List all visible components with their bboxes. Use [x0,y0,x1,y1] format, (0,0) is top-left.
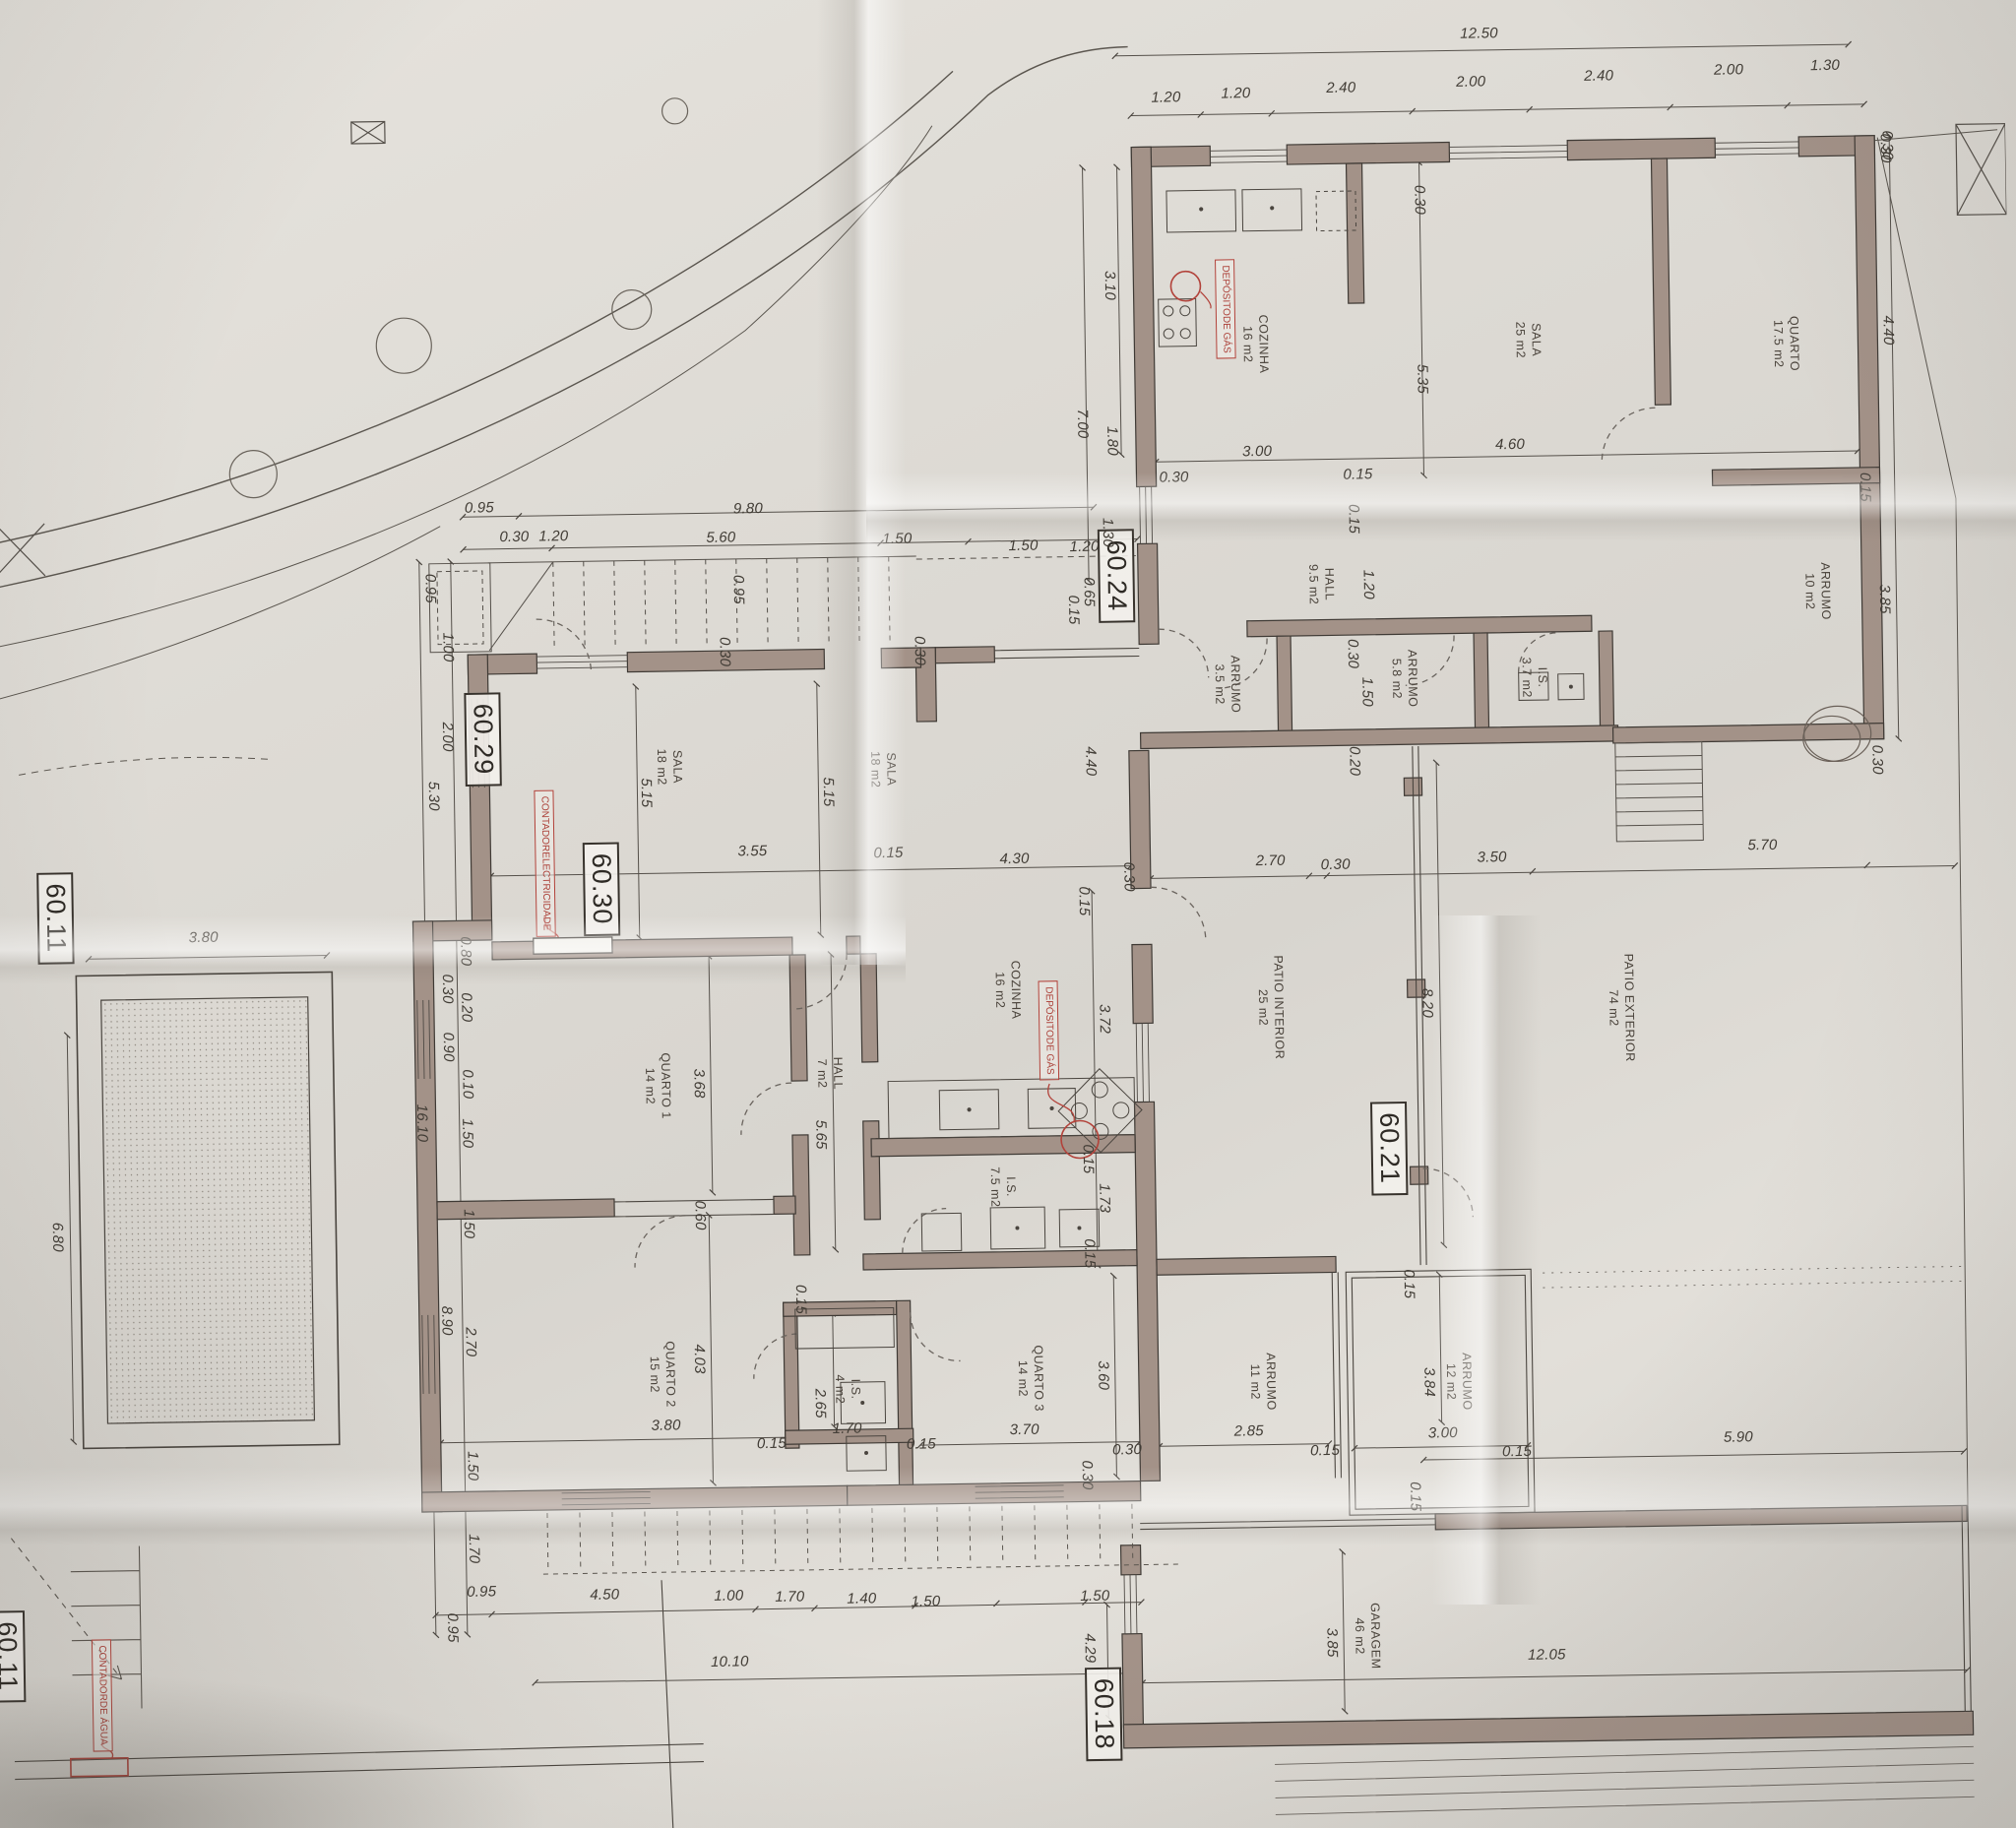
dim-label: 7.00 [1074,409,1091,438]
dim-label: 5.90 [1724,1428,1753,1445]
dim-label: 0.15 [1407,1481,1423,1511]
level-marker-60-18: 60.18 [1085,1668,1122,1761]
dim-label: 1.00 [439,632,456,662]
level-marker-60-29: 60.29 [464,692,501,786]
dim-label: 2.70 [462,1327,478,1356]
room-label-sala18-b: SALA18 m2 [867,751,900,788]
dim-label: 0.95 [730,575,747,604]
dim-label: 2.70 [1255,852,1285,869]
dim-label: 0.30 [1079,1460,1096,1489]
dim-label: 0.30 [1112,1441,1142,1458]
dim-label: 3.85 [1876,584,1893,613]
room-label-arrumo12: ARRUMO12 m2 [1442,1353,1475,1411]
agua-line1: CONTADOR [96,1645,108,1701]
dim-label: 0.20 [458,992,474,1022]
dim-label: 10.10 [711,1653,749,1670]
dim-label: 0.15 [1343,466,1372,482]
dim-label: 0.30 [1345,639,1361,668]
dim-label: 0.95 [421,574,438,603]
electric-meter-box [534,937,612,954]
dim-label: 1.80 [1103,426,1120,456]
gas-leader-main [1048,1084,1075,1123]
dim-label: 0.30 [1868,745,1885,775]
dim-label: 4.40 [1082,746,1099,776]
dim-label: 4.50 [590,1586,619,1603]
thin-partitions [605,635,1971,1732]
gas-label-line1: DEPÓSITO [1220,265,1231,316]
dim-label: 1.70 [833,1420,862,1437]
dim-label: 1.50 [911,1593,940,1609]
dim-label: 1.20 [538,528,568,544]
dim-label: 0.30 [1877,133,1894,162]
dim-label: 0.95 [465,499,494,516]
dim-label: 8.90 [438,1305,455,1335]
dimension-lines [52,43,1968,1734]
dim-label: 8.20 [1418,988,1435,1018]
dim-label: 1.30 [1100,518,1116,547]
walls-layer [401,135,1973,1759]
dim-label: 5.65 [812,1120,829,1150]
room-label-patio-exterior: PATIO EXTERIOR74 m2 [1605,954,1638,1063]
dim-label: 2.40 [1584,67,1613,84]
dim-label: 6.80 [49,1223,66,1252]
dim-label: 0.15 [1857,473,1873,502]
agua-line2: DE ÁGUA [97,1701,109,1745]
level-marker-60-11: 60.11 [36,872,74,964]
site-grate-symbols [0,96,2012,577]
level-marker-60-11-edge: 60.11 [0,1610,26,1702]
dim-label: 1.50 [882,531,912,547]
room-label-quarto2: QUARTO 215 m2 [646,1341,679,1408]
dim-label: 3.72 [1096,1004,1112,1034]
room-label-quarto-upper: QUARTO17.5 m2 [1770,316,1802,372]
elec-line1: CONTADOR [539,796,551,852]
dim-label: 0.80 [457,936,473,966]
site-trees [223,98,693,498]
dim-label: 0.15 [1080,1144,1097,1173]
dim-label: 0.15 [873,845,903,861]
dim-label: 0.10 [459,1069,475,1099]
dim-label: 3.10 [1102,271,1118,300]
dim-label: 1.30 [1810,57,1840,74]
dim-label: 5.70 [1747,837,1777,853]
dim-label: 0.15 [907,1435,936,1452]
room-label-sala-upper: SALA25 m2 [1512,321,1544,358]
dim-label: 1.50 [1358,677,1375,707]
water-meter-box [71,1758,128,1777]
room-label-patio-interior: PATIO INTERIOR25 m2 [1254,955,1288,1059]
dim-label: 2.65 [811,1389,828,1418]
dim-label: 4.03 [691,1344,708,1373]
room-label-arrumo10: ARRUMO10 m2 [1801,562,1834,620]
room-label-hall-upper: HALL9.5 m2 [1305,564,1338,605]
veranda-treads-bottom [542,1503,1183,1574]
dim-label: 1.20 [1151,89,1180,105]
dim-label: 2.40 [1326,79,1355,95]
room-label-is37: I.S.3.7 m2 [1518,657,1550,698]
gas-label-line1: DEPÓSITO [1043,986,1055,1038]
room-label-quarto3: QUARTO 314 m2 [1014,1345,1047,1412]
dim-label: 3.50 [1477,849,1506,865]
dim-label: 0.30 [911,636,927,665]
dim-label: 4.40 [1880,315,1897,345]
dim-label: 1.50 [461,1209,477,1238]
garden-steps [11,1537,142,1711]
gas-tank-circle-upper [1170,271,1200,300]
dim-label: 0.95 [444,1612,461,1642]
dim-label: 0.15 [1345,504,1361,534]
dim-label: 2.00 [1456,73,1485,90]
dim-label: 1.70 [775,1588,804,1605]
dim-label: 3.84 [1420,1367,1437,1397]
room-label-is75: I.S.7.5 m2 [986,1166,1019,1208]
room-label-quarto1: QUARTO 114 m2 [641,1052,674,1119]
water-meter-label: CONTADORDE ÁGUA [92,1639,113,1751]
dim-label: 4.30 [999,851,1029,867]
electricity-meter-label: CONTADORELECTRICIDADE [534,790,555,937]
dim-label: 1.50 [464,1451,480,1481]
dim-label: 4.29 [1081,1633,1098,1663]
dim-label: 3.00 [1242,443,1272,460]
dim-label: 1.20 [1069,538,1099,555]
dim-label: 5.15 [820,777,837,806]
room-label-is4: I.S.4 m2 [832,1374,864,1404]
swimming-pool [76,972,340,1448]
dim-label: 1.70 [466,1534,482,1563]
room-label-arrumo35: ARRUMO3.5 m2 [1211,656,1243,714]
room-label-arrumo58: ARRUMO5.8 m2 [1388,650,1420,708]
dim-label: 5.30 [425,782,442,811]
dim-label: 0.90 [440,1032,457,1061]
gas-label-line2: DE GÁS [1043,1038,1055,1075]
patio-stairs-upper-block [1615,742,1704,842]
dim-label: 1.73 [1096,1183,1112,1213]
dim-label: 1.20 [1221,85,1250,101]
dim-label: 0.60 [691,1200,708,1229]
dim-label: 1.00 [714,1587,743,1604]
dim-label: 5.35 [1414,364,1430,394]
dim-label: 2.00 [1714,61,1743,78]
gas-label-upper: DEPÓSITODE GÁS [1215,259,1236,359]
elec-line2: ELECTRICIDADE [539,851,551,930]
dim-label: 0.30 [1321,856,1351,873]
room-label-garagem: GARAGEM46 m2 [1351,1603,1384,1670]
dim-label: 0.15 [1502,1443,1532,1460]
dim-label: 0.95 [467,1583,496,1600]
dim-label: 3.80 [189,929,219,946]
dim-label: 9.80 [733,500,763,517]
dim-label: 3.70 [1010,1421,1039,1438]
room-label-cozinha-upper: COZINHA16 m2 [1239,314,1272,373]
dim-label: 3.00 [1428,1424,1458,1441]
street-lines [12,1580,705,1828]
dim-label: 2.85 [1234,1422,1264,1439]
dim-label: 1.40 [847,1590,876,1607]
dim-label: 0.15 [757,1435,787,1452]
dim-label: 12.50 [1460,25,1498,42]
dim-label: 1.50 [459,1118,475,1148]
dim-label: 0.15 [1081,1238,1098,1268]
dim-label: 4.60 [1495,436,1525,453]
dim-label: 2.00 [439,722,456,751]
room-label-sala18-a: SALA18 m2 [654,748,686,786]
level-marker-60-30: 60.30 [583,843,620,936]
room-label-hall-main: HALL7 m2 [813,1057,846,1091]
plan-linework [0,0,2016,1828]
dim-label: 0.30 [439,974,456,1003]
room-label-arrumo11: ARRUMO11 m2 [1246,1353,1279,1411]
dim-label: 5.15 [638,778,655,807]
plan-sheet: 60.24 60.29 60.30 60.11 60.21 60.18 60.1… [0,0,2016,1828]
dim-label: 0.20 [1346,746,1362,776]
dim-label: 0.15 [1076,886,1093,915]
dim-label: 0.30 [499,529,529,545]
dim-label: 0.30 [1411,185,1427,215]
dim-label: 0.15 [1401,1269,1417,1298]
dim-label: 0.15 [1065,595,1082,624]
dim-label: 5.60 [706,529,735,545]
entry-stairs-top [429,553,1137,653]
gas-label-main: DEPÓSITODE GÁS [1039,980,1060,1081]
dim-label: 1.50 [1008,537,1038,554]
gas-label-line2: DE GÁS [1221,316,1232,353]
dim-label: 0.30 [1159,469,1188,485]
dim-label: 0.30 [716,637,732,666]
dim-label: 16.10 [413,1104,431,1143]
dim-label: 0.65 [1081,577,1098,606]
dim-label: 3.60 [1095,1360,1111,1390]
level-marker-60-21: 60.21 [1370,1102,1408,1195]
dim-label: 0.15 [792,1285,809,1314]
dim-label: 0.30 [1120,862,1137,892]
dim-label: 12.05 [1528,1646,1566,1664]
floor-plan-photo: 60.24 60.29 60.30 60.11 60.21 60.18 60.1… [0,0,2016,1828]
dim-label: 3.80 [651,1417,680,1433]
dim-label: 0.15 [1310,1442,1340,1459]
dim-label: 1.20 [1359,570,1376,599]
dim-label: 3.68 [690,1068,707,1098]
dim-label: 3.85 [1323,1627,1340,1657]
dim-label: 3.55 [737,843,767,859]
room-label-cozinha-main: COZINHA16 m2 [991,961,1024,1020]
dim-label: 1.50 [1080,1588,1109,1605]
